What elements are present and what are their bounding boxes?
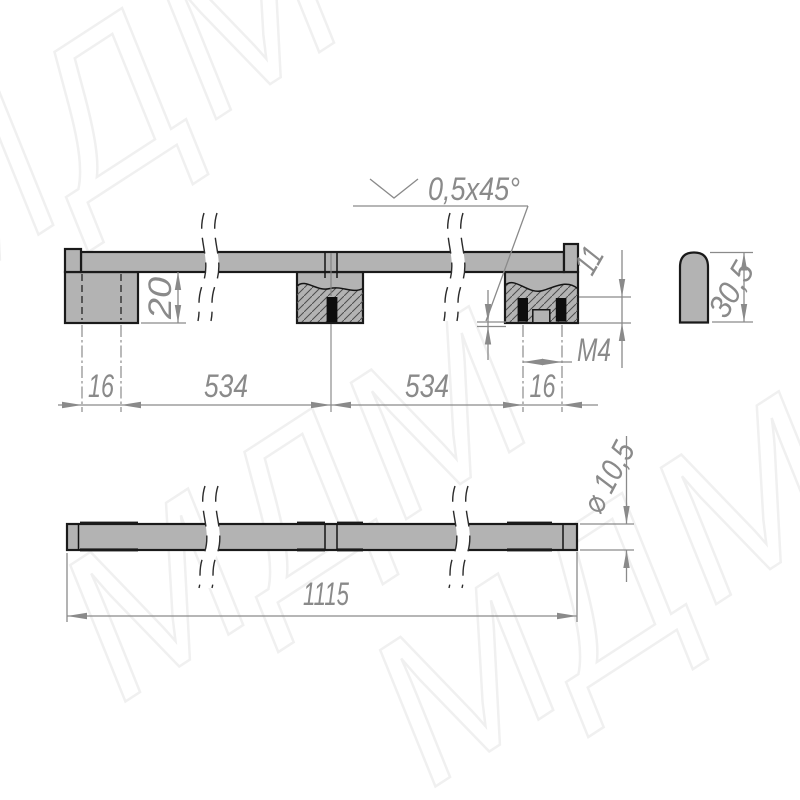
dim-chamfer-label: 0,5x45°: [428, 171, 520, 207]
dim-profile-height: 30,5: [701, 253, 761, 324]
foot-edge: [297, 548, 325, 551]
arrowhead: [542, 359, 562, 365]
drawing-page: МДМ МДМ МДМ: [0, 0, 800, 800]
dim-profile-height-label: 30,5: [701, 255, 761, 323]
handle-bar: [81, 252, 564, 272]
arrowhead: [62, 402, 82, 408]
arrowhead: [485, 304, 491, 322]
middle-screw-hole: [327, 297, 338, 322]
dim-thread: M4: [523, 332, 611, 368]
technical-drawing: МДМ МДМ МДМ: [0, 0, 800, 800]
dim-left-spacing-label: 16: [88, 368, 114, 404]
foot-edge: [80, 522, 138, 525]
watermark: МДМ МДМ МДМ: [0, 0, 800, 800]
left-end-cap: [65, 249, 81, 272]
chamfer-icon: [370, 179, 418, 198]
arrowhead: [121, 402, 141, 408]
right-screw-hole-2: [556, 298, 567, 322]
right-screw-hole-1: [518, 298, 528, 322]
dim-span-left-label: 534: [204, 368, 248, 404]
dim-foot-height: 20: [141, 272, 186, 323]
arrowhead: [523, 359, 543, 365]
dim-thread-label: M4: [577, 332, 611, 368]
foot-edge: [507, 548, 552, 551]
dim-span-right-label: 534: [405, 368, 449, 404]
foot-edge: [337, 522, 363, 525]
dim-total-length-label: 1115: [303, 576, 349, 612]
arrowhead: [562, 402, 582, 408]
dim-foot-height-label: 20: [142, 277, 178, 320]
profile-shape: [680, 253, 708, 323]
right-foot-notch: [533, 310, 550, 322]
dim-right-spacing-label: 16: [530, 368, 556, 404]
foot-edge: [507, 522, 552, 525]
arrowhead: [619, 323, 625, 341]
profile-view: 30,5: [680, 253, 761, 324]
left-foot: [65, 272, 138, 323]
foot-edge: [80, 548, 138, 551]
arrowhead: [619, 279, 625, 297]
handle-bar-plan: [67, 524, 577, 550]
foot-edge: [297, 522, 325, 525]
foot-edge: [337, 548, 363, 551]
